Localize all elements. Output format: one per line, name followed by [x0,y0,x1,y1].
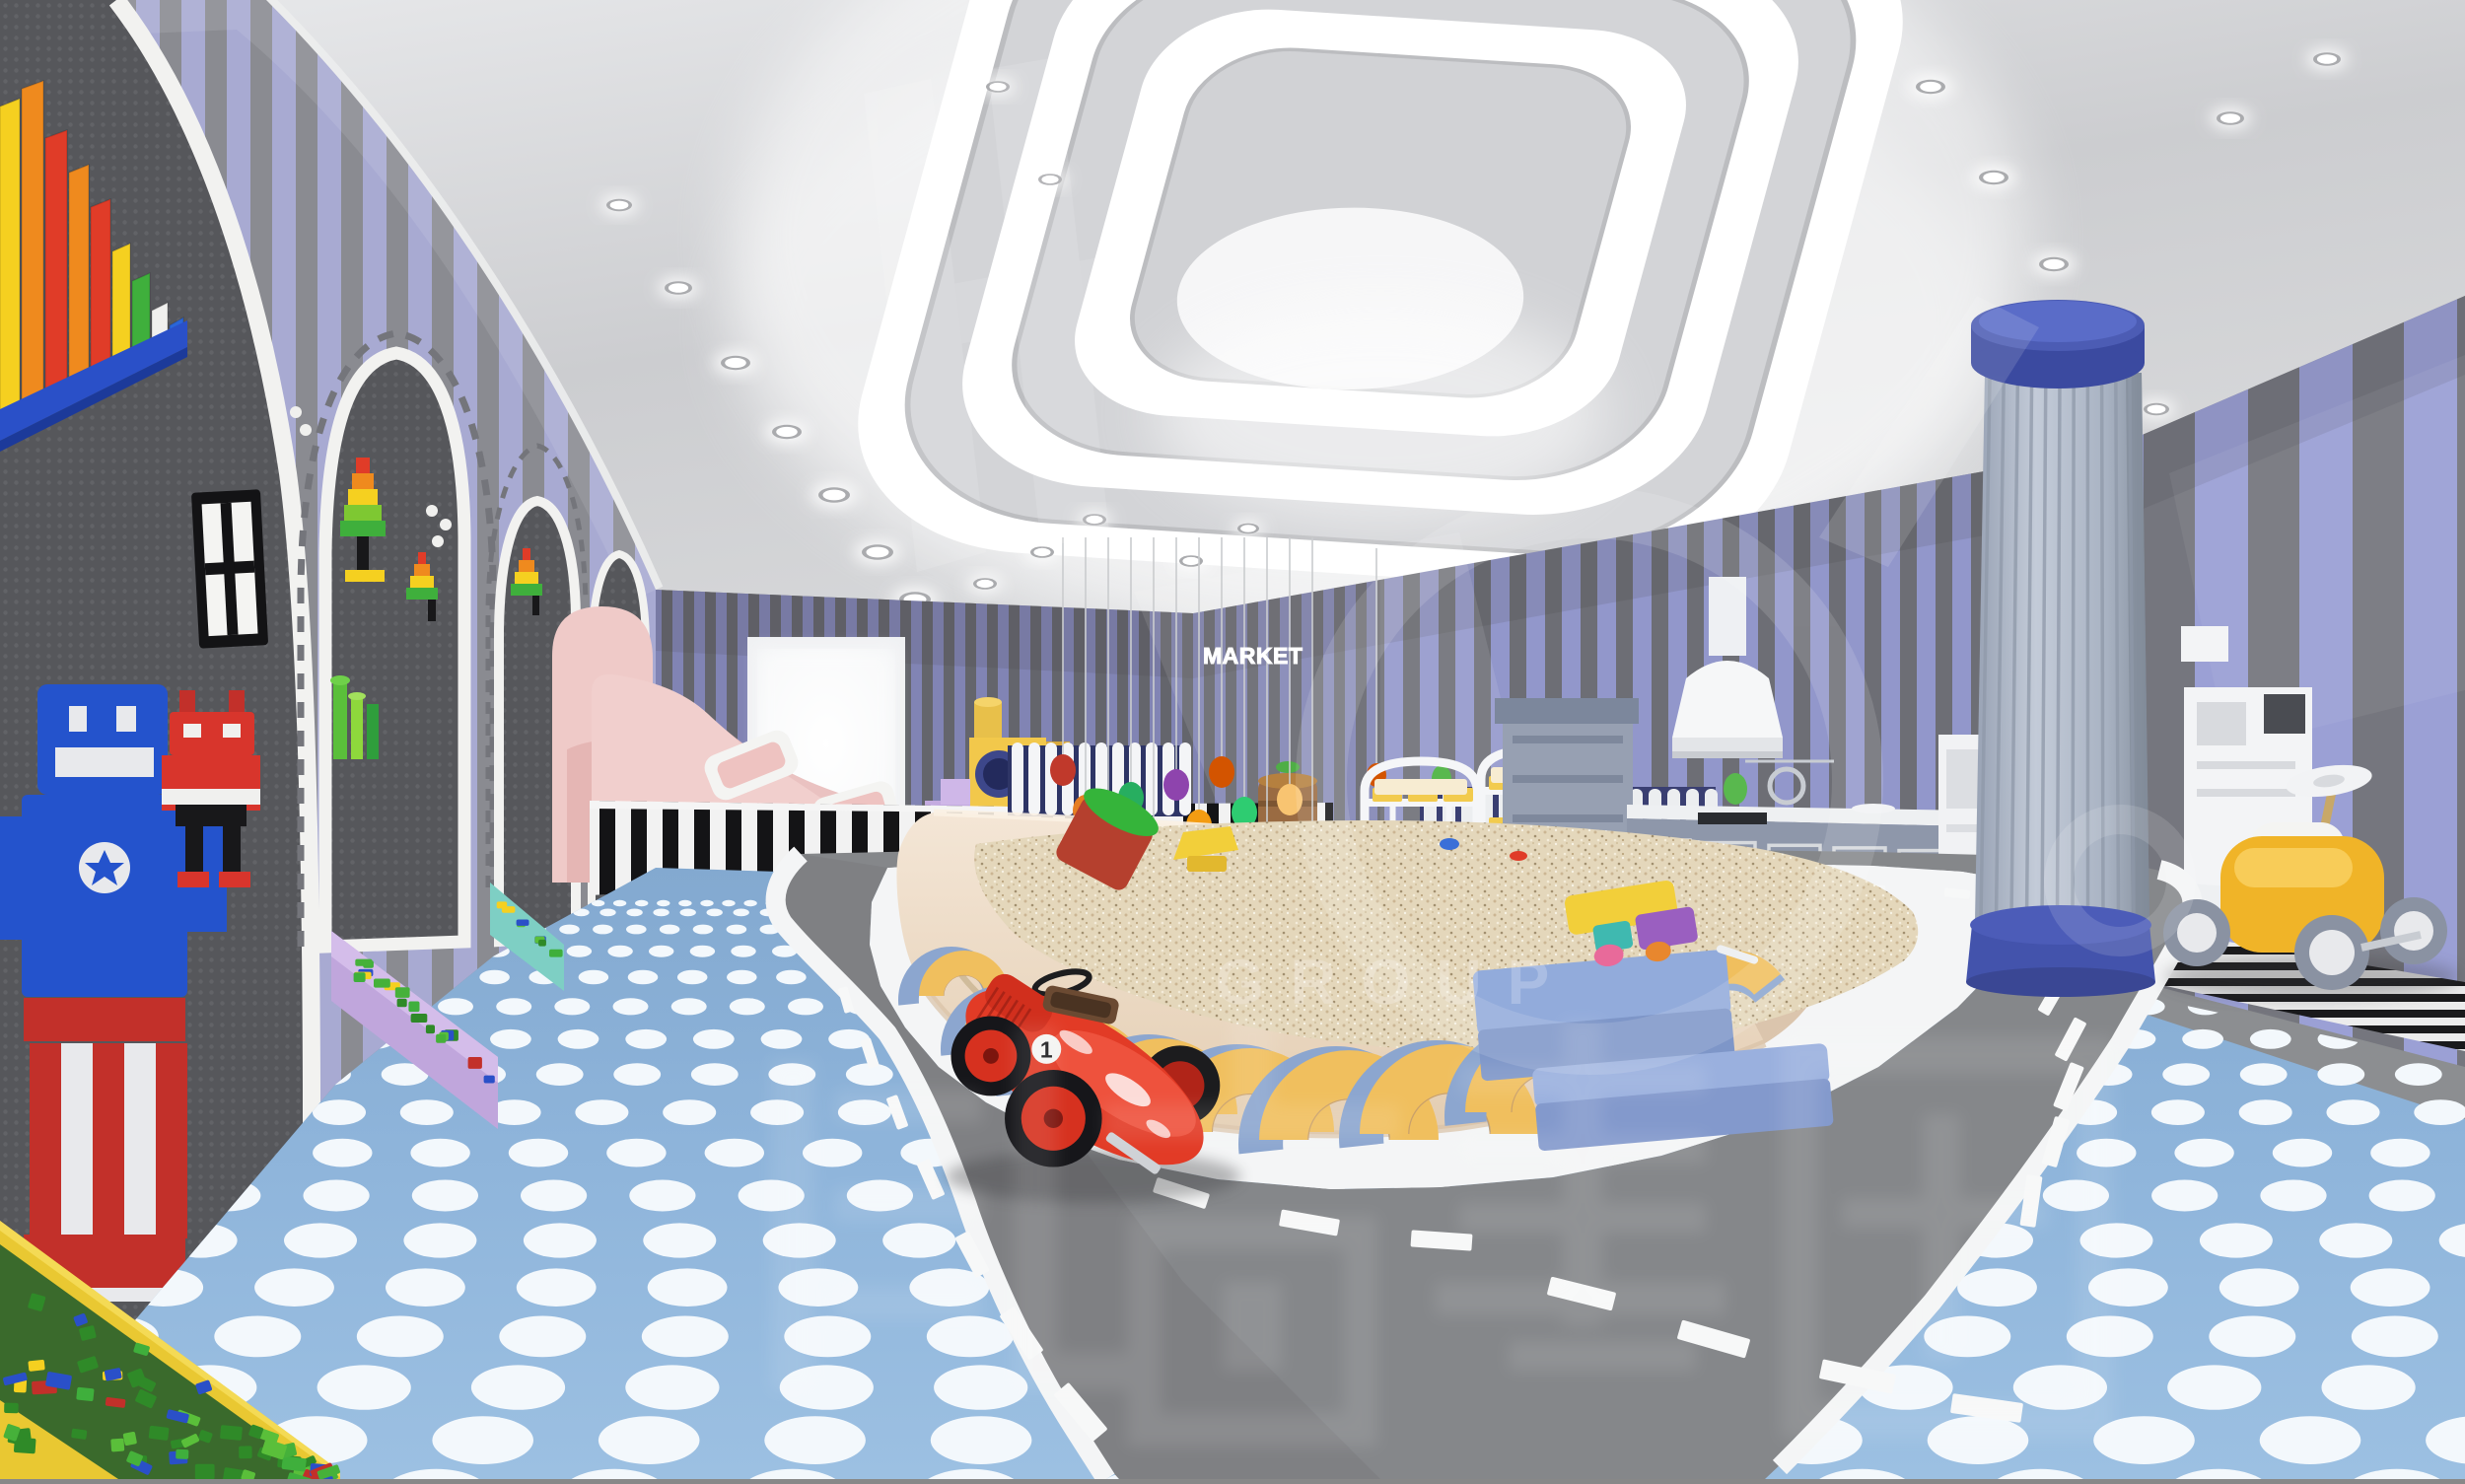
svg-text:GROUP: GROUP [1216,947,1576,1018]
svg-text:MARKET: MARKET [1203,643,1303,669]
